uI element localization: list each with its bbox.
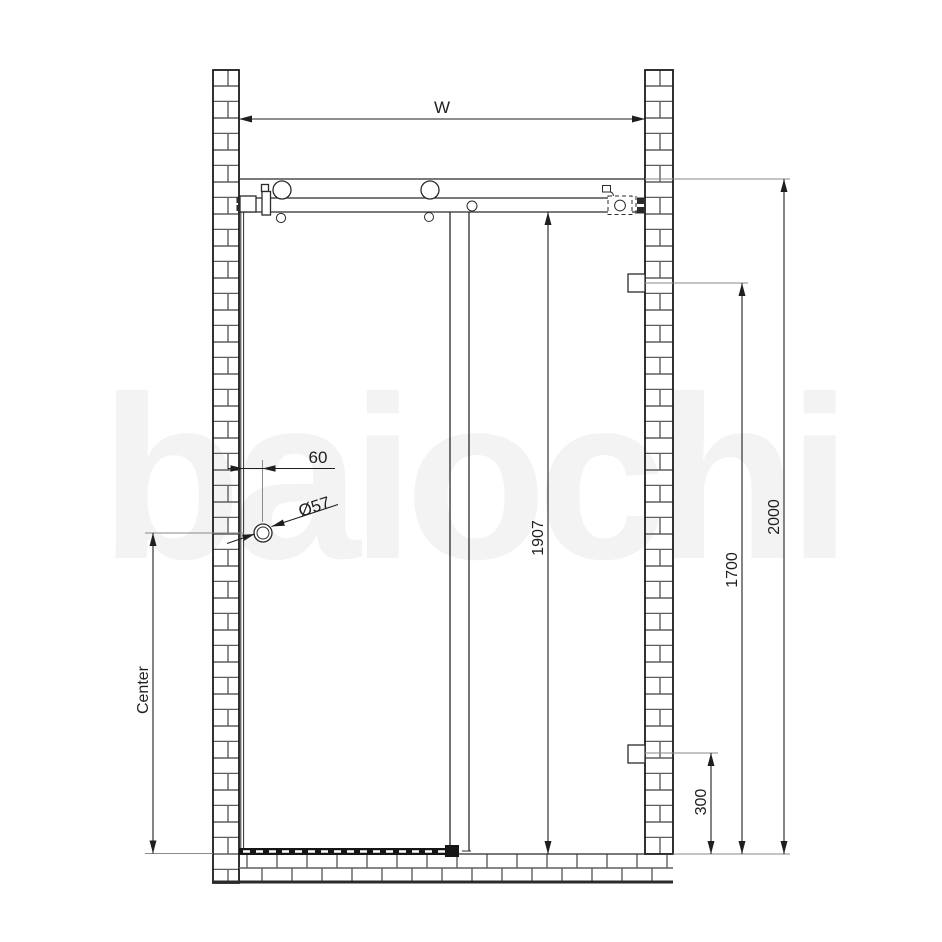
drawing-canvas: baiochi xyxy=(0,0,942,942)
floor-bricks xyxy=(239,854,673,882)
arrow-down-icon xyxy=(150,841,157,854)
dim-handle-offset-label: 60 xyxy=(309,448,328,467)
arrow-right-icon xyxy=(632,116,645,123)
mount-body xyxy=(240,196,256,212)
left-wall-bricks xyxy=(213,70,239,883)
roller-clip xyxy=(262,185,269,192)
door-handle-knob xyxy=(254,524,272,542)
floor-base-line xyxy=(213,881,673,884)
dim-bracket-height-label: 1700 xyxy=(724,552,741,588)
arrow-up-icon xyxy=(739,283,746,296)
wall-clip-lower xyxy=(637,207,644,214)
bracket-roller xyxy=(615,200,626,211)
shower-door-installation-drawing: baiochi xyxy=(0,0,942,942)
dim-width: W xyxy=(239,98,645,123)
door-roller-right xyxy=(421,181,439,222)
wall-clamp-lower xyxy=(628,745,645,763)
right-wall xyxy=(645,70,673,854)
left-wall xyxy=(213,70,239,883)
dim-glass-height: 1907 xyxy=(530,212,552,854)
arrow-up-icon xyxy=(708,753,715,766)
door-stopper-block xyxy=(445,845,459,857)
wall-clamp-upper xyxy=(628,274,645,292)
roller-hanger xyxy=(262,192,271,216)
dim-width-label: W xyxy=(434,98,450,117)
arrow-left-icon xyxy=(239,116,252,123)
door-roller-left xyxy=(262,181,292,223)
arrow-down-icon xyxy=(545,841,552,854)
roller-wheel xyxy=(421,181,439,199)
panel-guide-wheel xyxy=(467,201,477,211)
arrow-down-icon xyxy=(781,841,788,854)
top-rail xyxy=(237,179,646,223)
dim-glass-height-label: 1907 xyxy=(530,520,547,556)
arrow-down-icon xyxy=(739,841,746,854)
arrow-down-icon xyxy=(708,841,715,854)
dim-bracket-bottom-label: 300 xyxy=(693,789,710,816)
arrow-up-icon xyxy=(781,179,788,192)
floor xyxy=(213,854,673,884)
wall-clip-upper xyxy=(637,198,644,205)
rail-bracket-right xyxy=(603,186,645,216)
roller-guide-wheel xyxy=(276,213,285,222)
rail-wall-mount-left xyxy=(237,196,257,212)
anti-jump-clip xyxy=(603,186,611,193)
right-wall-bricks xyxy=(645,70,673,854)
dim-total-height-label: 2000 xyxy=(766,499,783,535)
roller-wheel xyxy=(273,181,291,199)
arrow-up-icon xyxy=(545,212,552,225)
dim-handle-center-label: Center xyxy=(135,665,152,714)
roller-guide-wheel xyxy=(425,213,434,222)
